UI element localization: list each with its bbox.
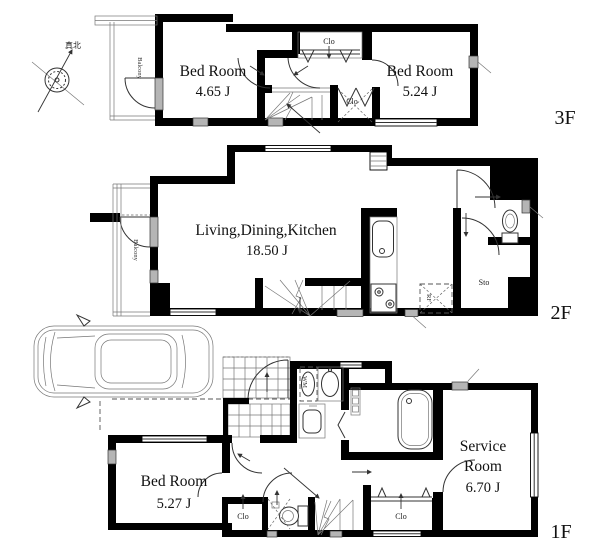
floor2-plan: Balcony RF (90, 145, 543, 328)
floor1-stairs (284, 468, 353, 535)
kitchen-counter (370, 217, 397, 313)
floor2-toilet (502, 210, 518, 243)
hanger-icon (302, 50, 352, 62)
bathtub (398, 390, 432, 449)
bathroom-door (338, 412, 345, 438)
balcony-door (150, 217, 158, 247)
floor1-toilet (268, 499, 308, 529)
compass-rose: 真北 (32, 40, 84, 112)
toilet-tank (298, 506, 308, 526)
room-name: Service (460, 438, 507, 455)
balcony-label: Balcony (132, 239, 139, 261)
room-area: 18.50 J (246, 243, 288, 259)
floor1-closet-back: Clo (371, 488, 432, 521)
closet-label: Clo (346, 97, 358, 106)
floor1-plan: WM (34, 315, 538, 537)
storage-label: Sto (479, 278, 490, 287)
floorplan-image: 真北 Balcony (0, 0, 600, 557)
floor-label-3f: 3F (554, 107, 575, 129)
floor3-closet-top: Clo (298, 32, 362, 62)
toilet-tank (502, 233, 518, 243)
refrigerator-label: RF (425, 294, 432, 302)
bathroom (338, 388, 432, 449)
closet-label: Clo (237, 512, 249, 521)
closet-label: Clo (395, 512, 407, 521)
washing-machine-label: WM (301, 376, 308, 388)
room-area: 5.27 J (157, 496, 192, 512)
toilet-bowl (503, 210, 518, 232)
floor3-plan: Balcony Clo Clo (95, 14, 491, 133)
balcony-window (150, 270, 158, 283)
balcony-door (155, 78, 163, 110)
entrance-hall-tiles (228, 404, 290, 437)
floor3-balcony: Balcony (95, 16, 157, 120)
floor-label-2f: 2F (550, 302, 571, 324)
room-area: 6.70 J (466, 480, 501, 496)
room-name: Bed Room (180, 63, 247, 80)
compass-label: 真北 (65, 40, 81, 50)
car-mirror (77, 397, 90, 408)
car-mirror (77, 315, 90, 326)
balcony-door-swing (125, 78, 155, 108)
entrance-porch (223, 357, 290, 398)
room-area: 4.65 J (196, 84, 231, 100)
floor2-balcony: Balcony (113, 184, 150, 316)
room-name: Bed Room (387, 63, 454, 80)
car (34, 315, 213, 408)
floor-label-1f: 1F (550, 521, 571, 543)
room-name: Room (464, 458, 502, 475)
floor3-closet-mid: Clo (338, 88, 374, 122)
room-name: Bed Room (141, 473, 208, 490)
kitchen-sink (373, 221, 394, 257)
balcony-label: Balcony (136, 57, 143, 79)
room-name: Living,Dining,Kitchen (195, 222, 336, 239)
hanger-icon (378, 488, 430, 497)
washing-machine: WM (300, 367, 317, 401)
closet-label: Clo (323, 37, 335, 46)
floorplan-svg: 真北 Balcony (0, 0, 600, 557)
room-area: 5.24 J (403, 84, 438, 100)
